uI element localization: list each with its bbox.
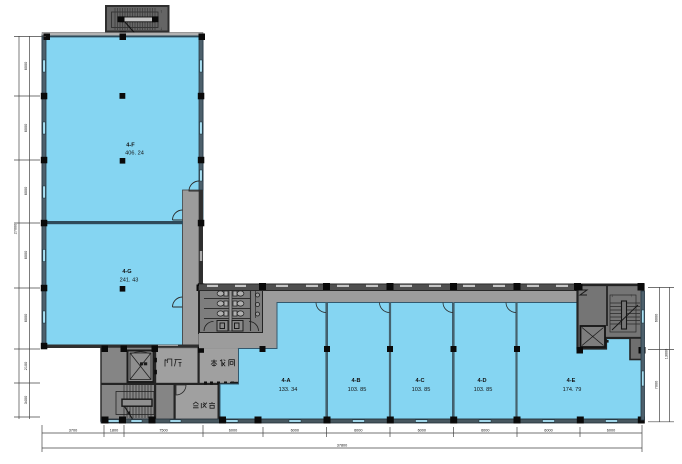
svg-text:6000: 6000 [24,314,28,322]
svg-text:6000: 6000 [354,429,362,433]
svg-text:4-B: 4-B [351,378,360,384]
svg-text:4-E: 4-E [567,378,576,384]
svg-text:6000: 6000 [24,251,28,259]
svg-text:174. 79: 174. 79 [563,387,582,393]
svg-text:3400: 3400 [24,396,28,404]
svg-text:↑: ↑ [160,9,162,14]
svg-text:6000: 6000 [24,187,28,195]
svg-text:2100: 2100 [24,362,28,370]
svg-text:6000: 6000 [291,429,299,433]
svg-text:6000: 6000 [481,429,489,433]
svg-text:6000: 6000 [229,429,237,433]
svg-text:27000: 27000 [14,224,18,235]
svg-text:↓: ↓ [611,293,613,298]
svg-text:6000: 6000 [24,124,28,132]
svg-text:7500: 7500 [159,429,167,433]
svg-text:103. 85: 103. 85 [348,387,367,393]
svg-text:103. 85: 103. 85 [474,387,493,393]
svg-text:103. 85: 103. 85 [412,387,431,393]
svg-text:6000: 6000 [607,429,615,433]
svg-text:4-D: 4-D [477,378,486,384]
svg-text:4-G: 4-G [122,269,131,275]
svg-text:3700: 3700 [69,429,77,433]
svg-text:4-A: 4-A [281,378,290,384]
svg-text:4-F: 4-F [126,143,135,149]
svg-text:7000: 7000 [655,381,659,389]
svg-text:↑: ↑ [630,293,632,298]
svg-text:37800: 37800 [337,444,348,448]
svg-text:6000: 6000 [418,429,426,433]
svg-text:↓: ↓ [160,26,162,31]
svg-text:6000: 6000 [24,62,28,70]
svg-text:406. 24: 406. 24 [125,151,144,157]
svg-text:13000: 13000 [665,349,669,360]
svg-text:241. 43: 241. 43 [120,278,139,284]
svg-text:133. 34: 133. 34 [279,387,298,393]
svg-text:4-C: 4-C [415,378,424,384]
svg-text:6000: 6000 [655,314,659,322]
svg-text:6000: 6000 [544,429,552,433]
svg-text:1800: 1800 [110,429,118,433]
